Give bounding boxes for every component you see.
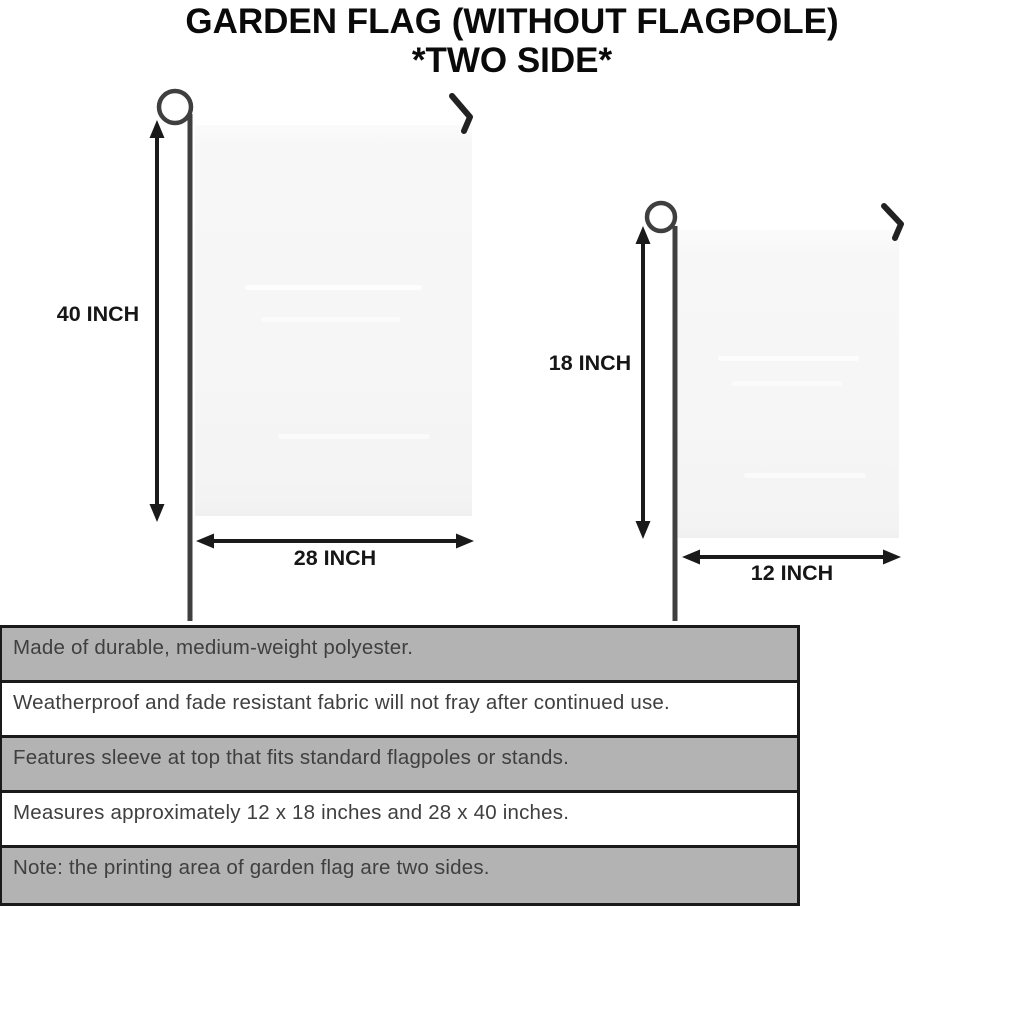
page-title-line1: GARDEN FLAG (WITHOUT FLAGPOLE) bbox=[185, 2, 838, 41]
fold-mark bbox=[261, 317, 400, 322]
large-height-arrow-icon bbox=[150, 120, 165, 522]
spec-row: Weatherproof and fade resistant fabric w… bbox=[2, 683, 797, 738]
spec-row: Measures approximately 12 x 18 inches an… bbox=[2, 793, 797, 848]
fold-mark bbox=[718, 356, 859, 361]
product-specs-table: Made of durable, medium-weight polyester… bbox=[0, 625, 800, 906]
page-title-line2: *TWO SIDE* bbox=[412, 41, 612, 80]
small-flag-preview bbox=[678, 230, 899, 538]
pole-loop-icon bbox=[159, 91, 191, 123]
small-height-arrow-icon bbox=[636, 226, 651, 539]
spec-text: Note: the printing area of garden flag a… bbox=[13, 856, 490, 879]
fold-mark bbox=[744, 473, 866, 478]
page-title: GARDEN FLAG (WITHOUT FLAGPOLE) *TWO SIDE… bbox=[0, 2, 1024, 80]
fold-mark bbox=[278, 434, 430, 439]
large-flag-preview bbox=[195, 125, 472, 516]
spec-text: Made of durable, medium-weight polyester… bbox=[13, 636, 413, 659]
spec-text: Features sleeve at top that fits standar… bbox=[13, 746, 569, 769]
large-flag-height-label: 40 INCH bbox=[48, 302, 148, 327]
spec-row: Made of durable, medium-weight polyester… bbox=[2, 628, 797, 683]
small-flag-height-label: 18 INCH bbox=[542, 351, 638, 376]
fold-mark bbox=[245, 285, 422, 290]
spec-row: Features sleeve at top that fits standar… bbox=[2, 738, 797, 793]
large-flag-width-label: 28 INCH bbox=[250, 546, 420, 571]
spec-text: Measures approximately 12 x 18 inches an… bbox=[13, 801, 569, 824]
small-flag-width-label: 12 INCH bbox=[707, 561, 877, 586]
pole-loop-icon bbox=[647, 203, 675, 231]
spec-row: Note: the printing area of garden flag a… bbox=[2, 848, 797, 903]
garden-flag-infographic: GARDEN FLAG (WITHOUT FLAGPOLE) *TWO SIDE… bbox=[0, 0, 1024, 1024]
fold-mark bbox=[731, 381, 842, 386]
spec-text: Weatherproof and fade resistant fabric w… bbox=[13, 691, 670, 714]
